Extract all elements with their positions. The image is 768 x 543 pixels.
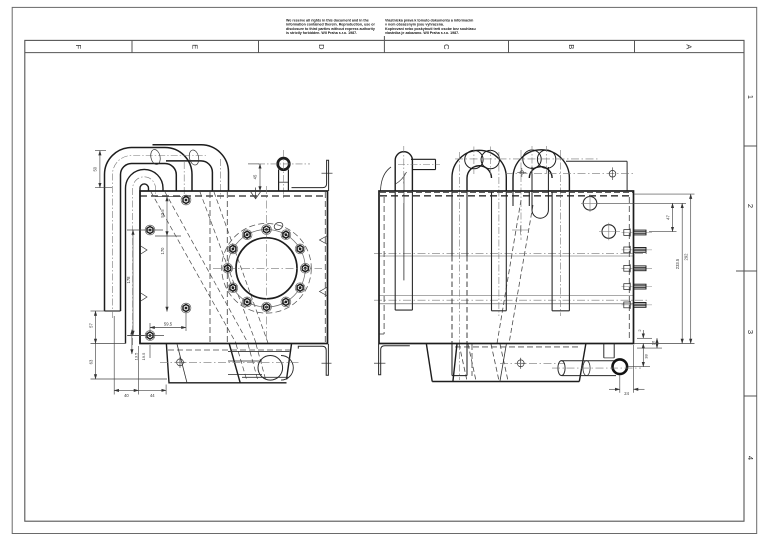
svg-text:A: A [685,44,694,49]
svg-text:233.5: 233.5 [675,258,680,269]
svg-text:57: 57 [88,323,93,328]
svg-text:is strictly forbidden. WII Pra: is strictly forbidden. WII Praha s.r.o. … [286,31,357,35]
svg-text:D: D [317,44,326,50]
svg-text:24: 24 [624,391,629,396]
svg-text:13.5: 13.5 [133,352,138,361]
svg-text:16: 16 [651,340,656,345]
svg-text:53.5: 53.5 [160,209,165,218]
svg-text:292: 292 [684,253,689,261]
svg-text:170: 170 [160,247,165,255]
svg-text:vlastnika je zakazano. WII Pra: vlastnika je zakazano. WII Praha s.r.o. … [385,31,459,35]
svg-text:178: 178 [126,276,131,284]
svg-text:38: 38 [644,354,649,359]
svg-text:47: 47 [665,215,670,220]
svg-text:E: E [191,44,200,49]
svg-text:C: C [442,44,451,50]
svg-text:2: 2 [746,204,755,208]
svg-text:4: 4 [746,456,755,460]
svg-text:1: 1 [746,95,755,99]
svg-text:B: B [567,44,576,49]
svg-text:63: 63 [88,359,93,364]
svg-text:19.5: 19.5 [141,352,146,361]
svg-text:45: 45 [253,174,258,179]
svg-text:40: 40 [124,393,129,398]
svg-text:2: 2 [637,329,642,332]
svg-text:3: 3 [746,330,755,334]
svg-text:50: 50 [93,166,98,171]
svg-text:44: 44 [150,393,155,398]
svg-text:59.5: 59.5 [164,321,173,326]
svg-text:F: F [74,45,83,50]
